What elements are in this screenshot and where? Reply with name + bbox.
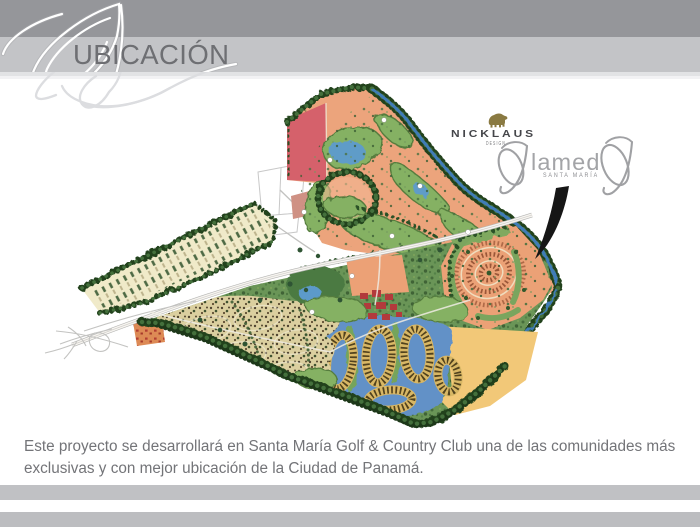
svg-text:exclusivas y con mejor ubicaci: exclusivas y con mejor ubicación de la C… <box>24 460 424 477</box>
svg-text:NICKLAUS: NICKLAUS <box>451 129 536 140</box>
svg-text:lamed: lamed <box>531 149 601 175</box>
svg-text:SANTA MARÍA: SANTA MARÍA <box>543 172 599 179</box>
svg-text:Este proyecto se desarrollará: Este proyecto se desarrollará en Santa M… <box>24 438 676 455</box>
svg-text:UBICACIÓN: UBICACIÓN <box>73 39 229 70</box>
